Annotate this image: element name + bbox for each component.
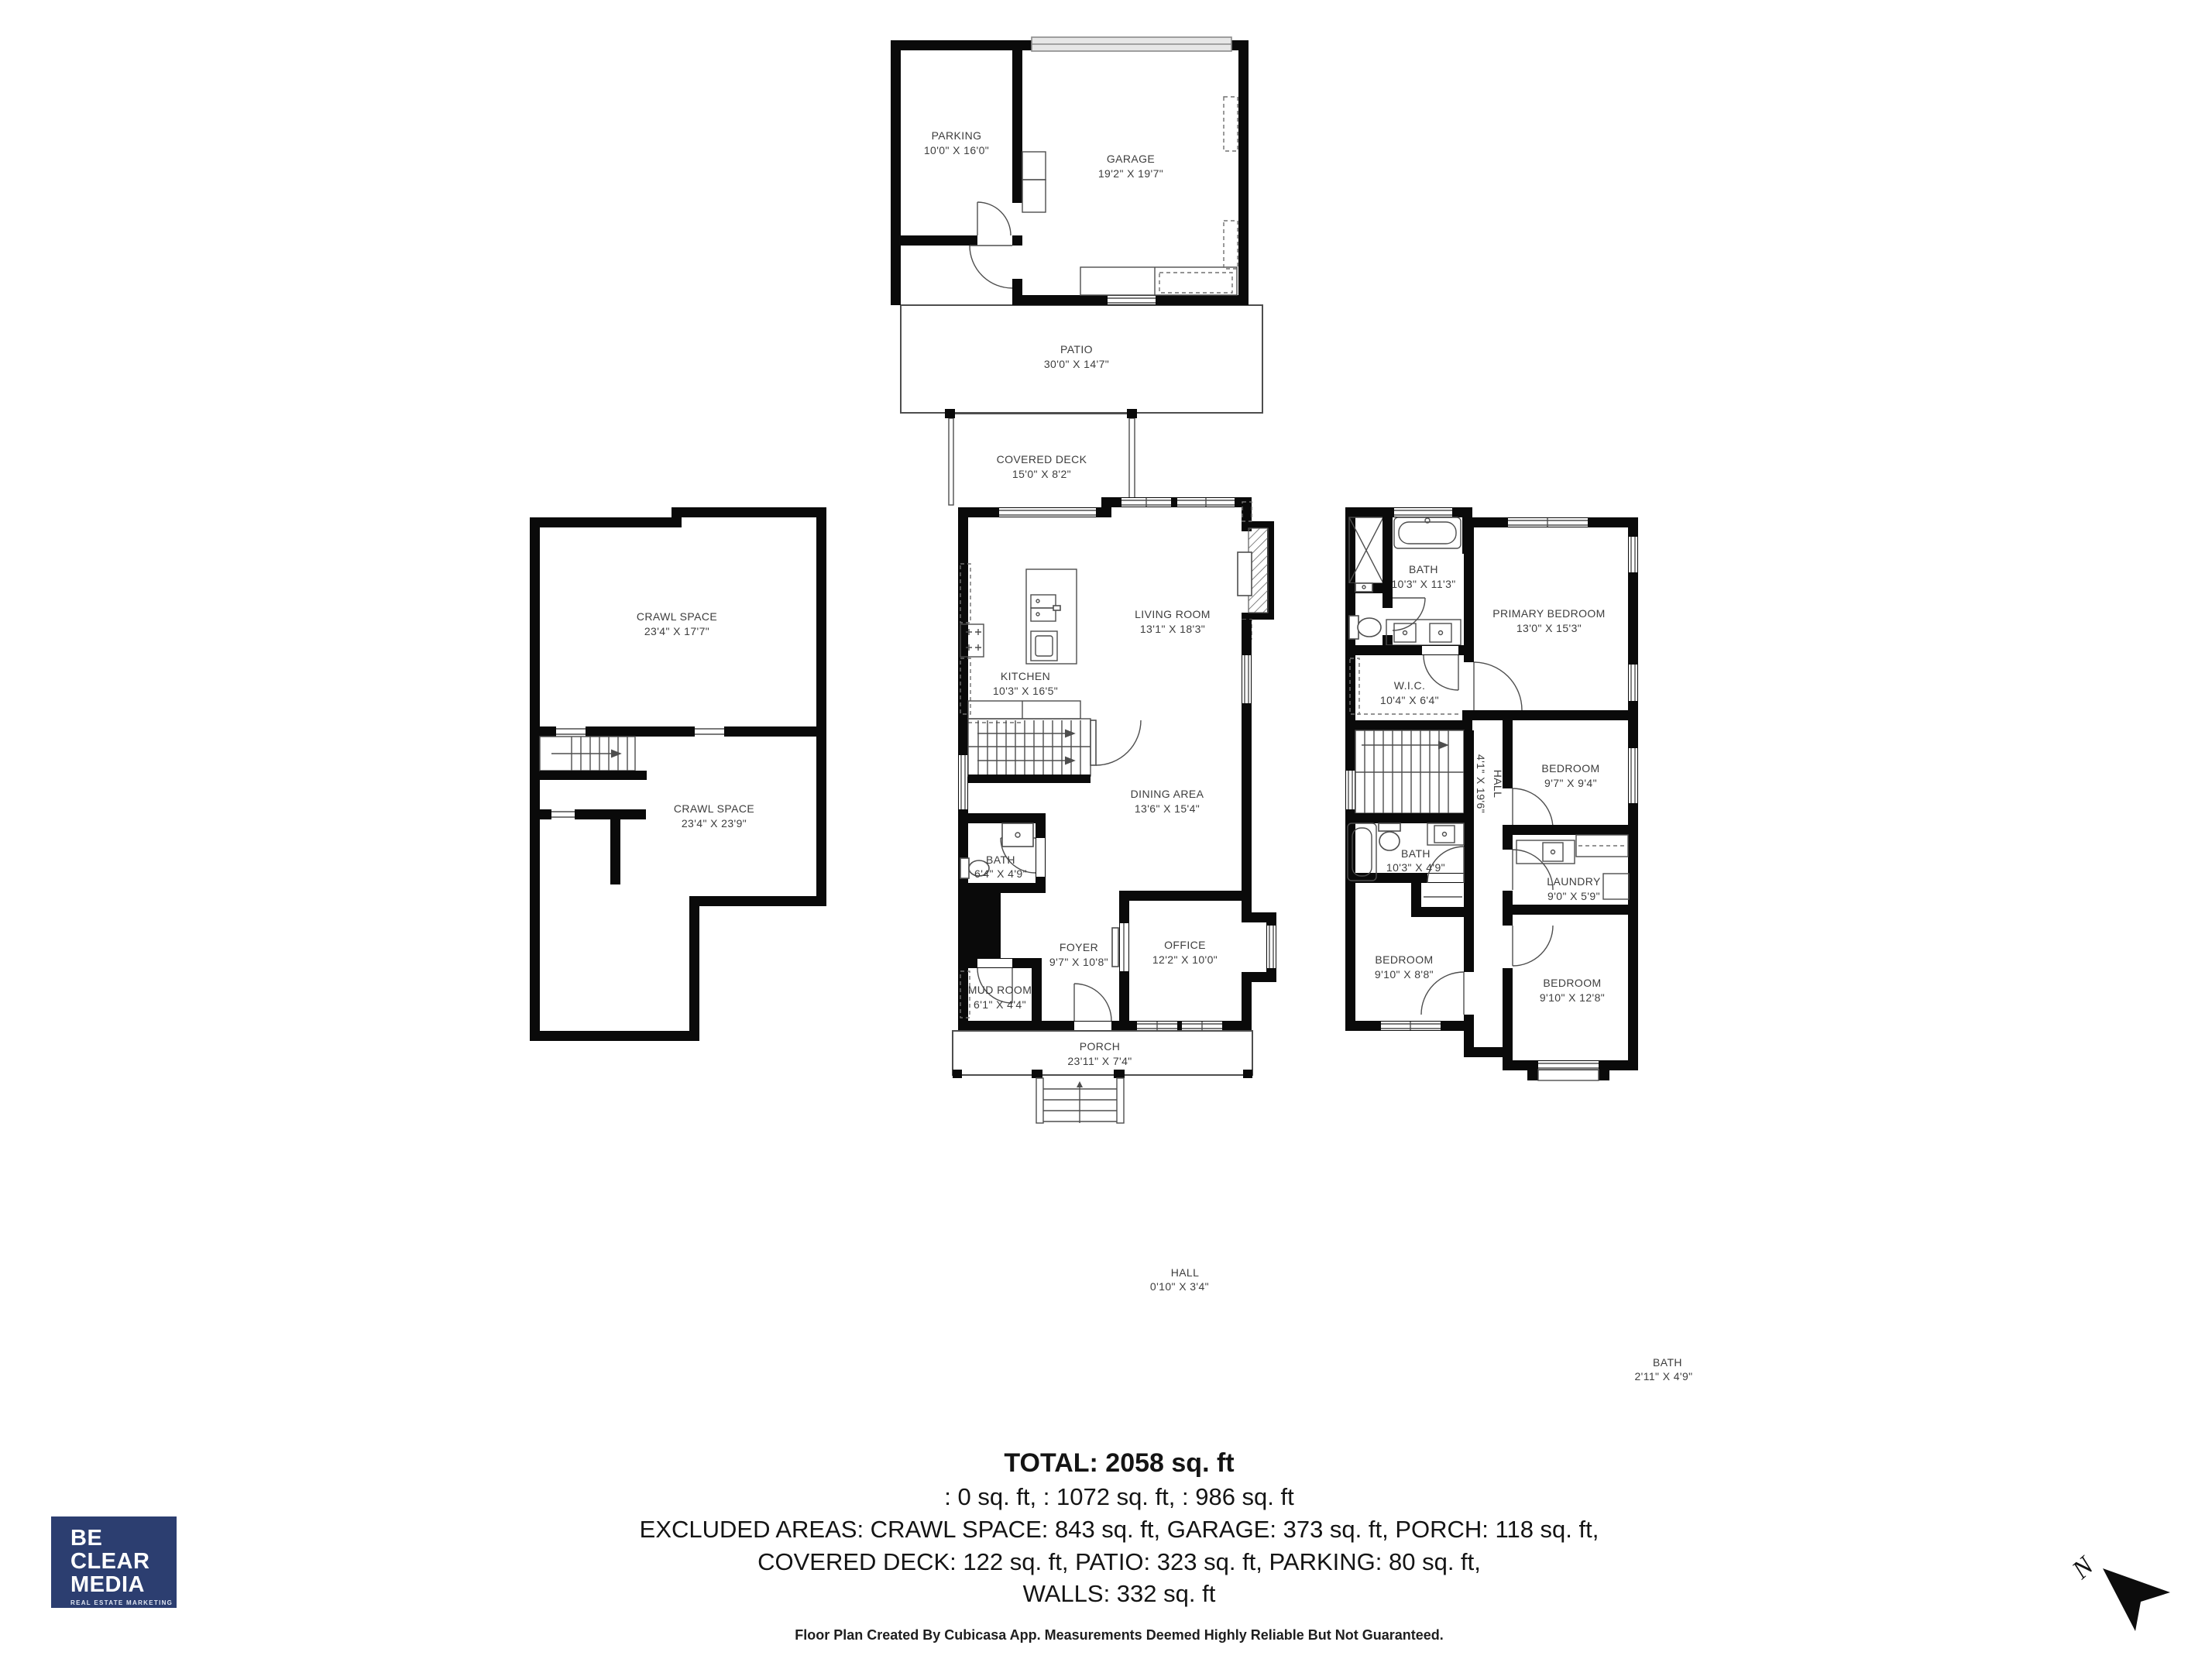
upper-stairs [1345, 730, 1464, 823]
room-parking-label: PARKING 10'0" X 16'0" [924, 129, 989, 156]
kitchen-island [1026, 569, 1077, 664]
room-dims: 23'4" X 17'7" [644, 625, 709, 637]
workbench [1080, 267, 1237, 295]
room-name: CRAWL SPACE [674, 802, 754, 815]
covered-deck: COVERED DECK 15'0" X 8'2" [945, 409, 1137, 505]
room-dims: 13'1" X 18'3" [1140, 623, 1205, 635]
room-dims: 6'1" X 4'4" [974, 998, 1026, 1011]
room-foyer-label: FOYER 9'7" X 10'8" [1049, 941, 1108, 968]
room-laundry-label: LAUNDRY 9'0" X 5'9" [1547, 875, 1601, 902]
primary-side-window [1629, 537, 1637, 572]
wic-door [1422, 646, 1458, 690]
room-dims: 23'11" X 7'4" [1067, 1055, 1132, 1067]
room-bath-small-label: BATH 10'3" X 4'9" [1386, 847, 1445, 874]
garage-door [1032, 37, 1231, 51]
room-kitchen-label: KITCHEN 10'3" X 16'5" [993, 670, 1058, 697]
office-bay-window [1267, 926, 1276, 968]
toilet-icon [1379, 823, 1400, 850]
room-name: HALL [1171, 1266, 1200, 1279]
be-clear-media-logo: BE CLEAR MEDIA REAL ESTATE MARKETING [51, 1516, 177, 1608]
primary-door [1465, 662, 1522, 710]
room-dims: 9'10" X 8'8" [1375, 968, 1434, 981]
garage-window [1108, 296, 1156, 304]
room-primary-label: PRIMARY BEDROOM 13'0" X 15'3" [1492, 607, 1606, 634]
room-name: BEDROOM [1375, 953, 1433, 966]
crawl-wall-opening [551, 809, 575, 819]
room-crawl-lower-label: CRAWL SPACE 23'4" X 23'9" [674, 802, 754, 829]
crawl-level: CRAWL SPACE 23'4" X 17'7" CRAWL SPACE 23… [530, 507, 826, 1041]
stair-side-window [1346, 771, 1355, 809]
washer-icon [1603, 874, 1629, 899]
room-crawl-upper-label: CRAWL SPACE 23'4" X 17'7" [637, 610, 717, 637]
garage-cabinet [1022, 180, 1046, 212]
sink-icon [1427, 823, 1464, 845]
porch-steps [1036, 1078, 1124, 1123]
room-mud-label: MUD ROOM 6'1" X 4'4" [968, 984, 1032, 1011]
garage-cabinet [1022, 152, 1046, 180]
living-room-window [1177, 498, 1235, 507]
room-name: DINING AREA [1131, 788, 1204, 800]
room-name: MUD ROOM [968, 984, 1032, 996]
kitchen-counter [968, 701, 1080, 723]
crawl-divider-opening [695, 726, 724, 737]
sink-icon [1002, 823, 1033, 847]
room-covered-deck-label: COVERED DECK 15'0" X 8'2" [997, 453, 1087, 480]
room-dims: 10'3" X 16'5" [993, 685, 1058, 697]
room-hall-float-label: HALL 0'10" X 3'4" [1150, 1266, 1209, 1293]
room-dims: 9'7" X 10'8" [1049, 956, 1108, 968]
bedroom-right-door [1503, 926, 1553, 966]
toilet-door [1393, 598, 1425, 630]
garage-storage [1224, 221, 1238, 269]
upper-level: BATH 10'3" X 11'3" PRIMARY BEDROOM 13'0"… [1345, 507, 1638, 1080]
floor-plan-page: PARKING 10'0" X 16'0" GARAGE 19'2" X 19'… [0, 0, 2212, 1659]
door-parking [977, 202, 1012, 245]
room-dims: 12'2" X 10'0" [1152, 953, 1218, 966]
logo-line-2: CLEAR [70, 1550, 177, 1573]
summary-walls: WALLS: 332 sq. ft [1023, 1580, 1216, 1607]
floating-labels: HALL 0'10" X 3'4" BATH 2'11" X 4'9" [1150, 1266, 1693, 1382]
room-name: KITCHEN [1001, 670, 1050, 682]
room-name: BATH [1409, 563, 1438, 575]
stair-window [959, 755, 967, 809]
primary-window [1508, 518, 1588, 527]
room-dims: 10'0" X 16'0" [924, 144, 989, 156]
laundry-door [1503, 850, 1553, 891]
room-dims: 13'6" X 15'4" [1135, 802, 1200, 815]
room-dims: 4'1" X 19'6" [1475, 754, 1487, 813]
room-name: GARAGE [1107, 153, 1155, 165]
room-name: OFFICE [1164, 939, 1206, 951]
room-dims: 0'10" X 3'4" [1150, 1280, 1209, 1293]
room-name: BATH [986, 854, 1015, 866]
office-window [1137, 1022, 1177, 1030]
room-dims: 23'4" X 23'9" [682, 817, 747, 829]
summary-total: TOTAL: 2058 sq. ft [1004, 1448, 1234, 1478]
room-name: BATH [1653, 1356, 1682, 1369]
room-garage-label: GARAGE 19'2" X 19'7" [1098, 153, 1163, 180]
disclaimer: Floor Plan Created By Cubicasa App. Meas… [795, 1627, 1444, 1643]
room-dims: 9'0" X 5'9" [1547, 890, 1600, 902]
room-bedroom-right-label: BEDROOM 9'10" X 12'8" [1540, 977, 1605, 1004]
room-name: PARKING [932, 129, 982, 142]
room-dims: 10'4" X 6'4" [1380, 694, 1439, 706]
room-living-label: LIVING ROOM 13'1" X 18'3" [1135, 608, 1211, 635]
room-dims: 6'4" X 4'9" [974, 867, 1027, 880]
room-name: BEDROOM [1541, 762, 1599, 775]
fireplace [1238, 502, 1274, 639]
logo-line-3: MEDIA [70, 1573, 177, 1596]
pocket-door [1112, 928, 1118, 967]
north-label: N [2066, 1551, 2100, 1585]
room-bath-float-label: BATH 2'11" X 4'9" [1634, 1356, 1692, 1382]
room-wic-label: W.I.C. 10'4" X 6'4" [1380, 679, 1439, 706]
room-name: W.I.C. [1394, 679, 1426, 692]
room-dims: 10'3" X 11'3" [1391, 578, 1455, 590]
summary-excluded-1: EXCLUDED AREAS: CRAWL SPACE: 843 sq. ft,… [640, 1516, 1599, 1543]
primary-side-window [1629, 665, 1637, 701]
room-bedroom-mid-label: BEDROOM 9'7" X 9'4" [1541, 762, 1599, 789]
vanity-double-sink [1386, 620, 1461, 645]
room-dims: 9'10" X 12'8" [1540, 991, 1605, 1004]
room-name: PORCH [1080, 1040, 1121, 1053]
room-office-label: OFFICE 12'2" X 10'0" [1152, 939, 1218, 966]
room-dims: 10'3" X 4'9" [1386, 861, 1445, 874]
room-bath-upper-label: BATH 10'3" X 11'3" [1391, 563, 1455, 590]
kitchen-window [999, 508, 1096, 517]
room-name: PATIO [1060, 343, 1093, 355]
room-dims: 19'2" X 19'7" [1098, 167, 1163, 180]
front-door [1074, 984, 1111, 1030]
chimney-block [958, 893, 1001, 958]
room-dims: 9'7" X 9'4" [1544, 777, 1597, 789]
room-dims: 30'0" X 14'7" [1044, 358, 1109, 370]
room-hall-upper-label: HALL 4'1" X 19'6" [1475, 754, 1504, 813]
toilet-icon [1349, 616, 1381, 639]
room-dining-label: DINING AREA 13'6" X 15'4" [1131, 788, 1204, 815]
sink-icon [1355, 583, 1372, 592]
garage-level: PARKING 10'0" X 16'0" GARAGE 19'2" X 19'… [891, 37, 1262, 413]
bedroom-left-window [1381, 1022, 1441, 1030]
room-dims: 13'0" X 15'3" [1516, 622, 1582, 634]
office-window [1182, 1022, 1222, 1030]
room-name: HALL [1492, 770, 1504, 799]
crawl-divider-opening [556, 726, 586, 737]
summary-floors: : 0 sq. ft, : 1072 sq. ft, : 986 sq. ft [944, 1483, 1294, 1510]
crawl-stairs [540, 737, 647, 780]
summary-block: TOTAL: 2058 sq. ft : 0 sq. ft, : 1072 sq… [640, 1448, 1599, 1643]
summary-excluded-2: COVERED DECK: 122 sq. ft, PATIO: 323 sq.… [757, 1548, 1481, 1575]
room-name: BATH [1401, 847, 1431, 860]
room-name: BEDROOM [1543, 977, 1601, 989]
bathtub-icon [1394, 517, 1461, 548]
room-bedroom-left-label: BEDROOM 9'10" X 8'8" [1375, 953, 1434, 981]
room-name: COVERED DECK [997, 453, 1087, 465]
floor-plan-canvas: PARKING 10'0" X 16'0" GARAGE 19'2" X 19'… [0, 0, 2212, 1659]
main-level: KITCHEN 10'3" X 16'5" LIVING ROOM 13'1" … [953, 497, 1276, 1123]
room-dims: 15'0" X 8'2" [1012, 468, 1071, 480]
main-stairs [968, 719, 1091, 783]
logo-line-1: BE [70, 1527, 177, 1550]
room-porch-label: PORCH 23'11" X 7'4" [1067, 1040, 1132, 1067]
room-name: LIVING ROOM [1135, 608, 1211, 620]
room-patio-label: PATIO 30'0" X 14'7" [1044, 343, 1109, 370]
stair-door [1091, 720, 1141, 765]
room-name: LAUNDRY [1547, 875, 1601, 888]
room-name: PRIMARY BEDROOM [1492, 607, 1606, 620]
bedroom-mid-door [1503, 788, 1553, 829]
garage-storage [1224, 97, 1238, 151]
room-name: CRAWL SPACE [637, 610, 717, 623]
room-name: FOYER [1060, 941, 1098, 953]
bath-window [1394, 508, 1452, 517]
living-room-window [1121, 498, 1171, 507]
north-arrow-icon: N [2066, 1551, 2170, 1631]
logo-tagline: REAL ESTATE MARKETING [70, 1599, 177, 1606]
room-dims: 2'11" X 4'9" [1634, 1370, 1692, 1382]
bedroom-side-window [1629, 748, 1637, 803]
dining-window [1242, 655, 1251, 703]
